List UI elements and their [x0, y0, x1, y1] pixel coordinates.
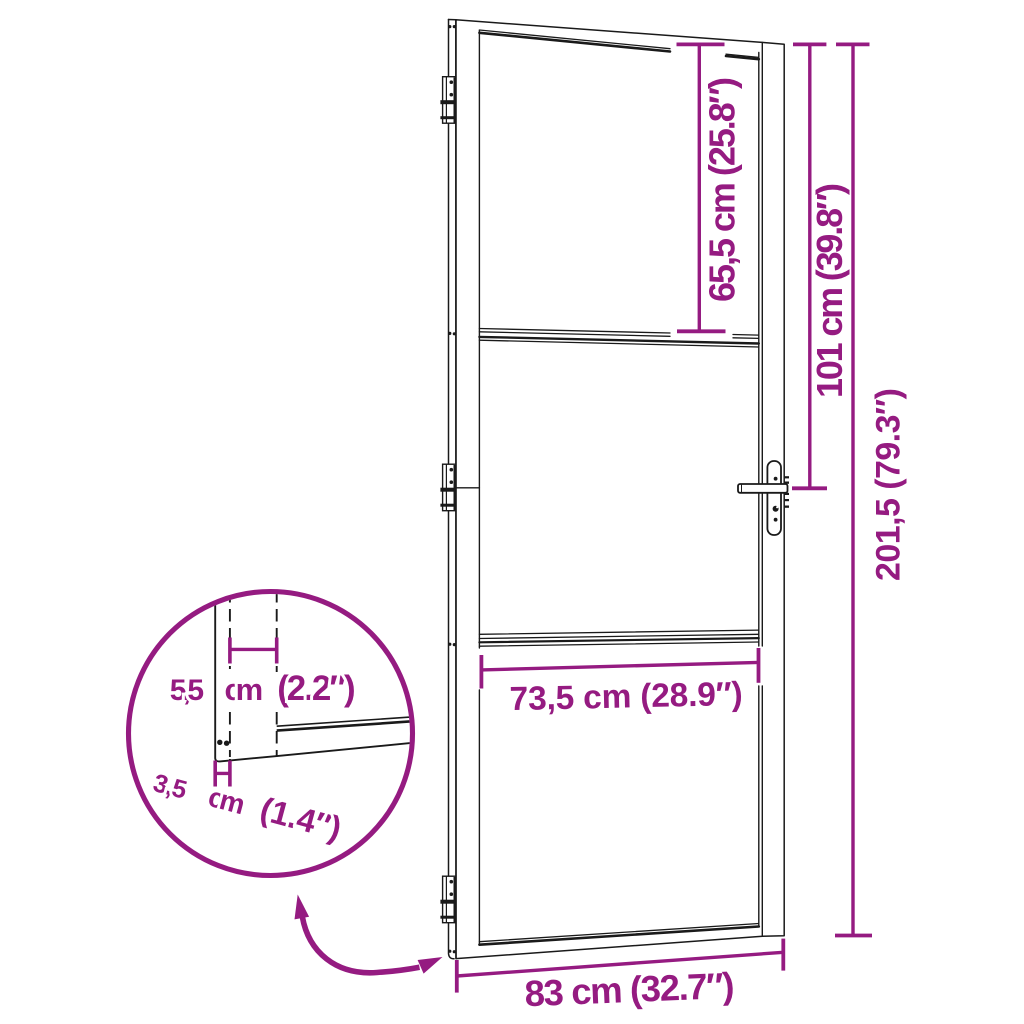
svg-text:83 cm (32.7″): 83 cm (32.7″): [524, 965, 735, 1014]
svg-text:201,5 (79.3″): 201,5 (79.3″): [870, 388, 908, 581]
svg-text:5,5: 5,5: [170, 674, 204, 707]
svg-text:cm: cm: [225, 672, 264, 707]
svg-text:65,5 cm (25.8″): 65,5 cm (25.8″): [702, 77, 743, 302]
svg-text:(2.2″): (2.2″): [277, 669, 356, 708]
svg-text:73,5 cm (28.9″): 73,5 cm (28.9″): [509, 676, 743, 718]
svg-text:101 cm (39.8″): 101 cm (39.8″): [809, 183, 850, 398]
